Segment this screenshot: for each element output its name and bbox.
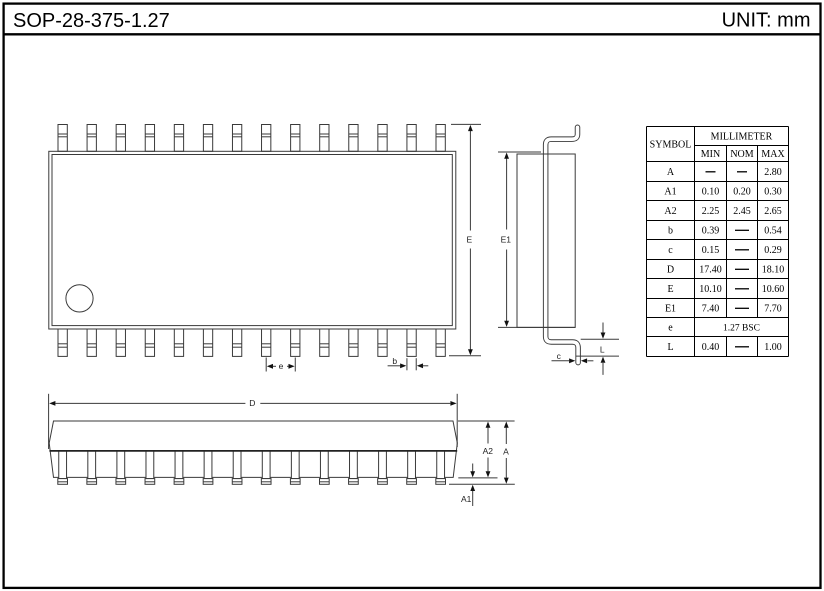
svg-text:17.40: 17.40 [699,265,722,276]
svg-text:NOM: NOM [730,149,753,160]
svg-text:A2: A2 [664,206,676,217]
svg-text:D: D [249,398,255,408]
svg-text:UNIT: mm: UNIT: mm [722,10,811,32]
svg-text:c: c [668,245,673,256]
svg-text:0.40: 0.40 [702,342,720,353]
svg-text:7.70: 7.70 [764,304,782,315]
svg-text:A1: A1 [664,187,676,198]
svg-text:18.10: 18.10 [762,265,785,276]
svg-text:0.30: 0.30 [764,187,782,198]
svg-text:A: A [667,167,675,178]
svg-text:0.54: 0.54 [764,226,782,237]
svg-text:E1: E1 [501,235,512,245]
svg-text:A2: A2 [483,446,494,456]
svg-text:MAX: MAX [761,149,785,160]
svg-text:E: E [466,235,472,245]
svg-text:0.10: 0.10 [702,187,720,198]
svg-text:e: e [668,323,673,334]
svg-text:0.20: 0.20 [733,187,751,198]
svg-text:10.10: 10.10 [699,284,722,295]
svg-text:b: b [392,356,397,366]
svg-text:A: A [503,447,509,457]
svg-text:2.65: 2.65 [764,206,782,217]
svg-text:MIN: MIN [701,149,720,160]
svg-text:7.40: 7.40 [702,304,720,315]
svg-text:0.39: 0.39 [702,226,720,237]
svg-text:2.80: 2.80 [764,167,782,178]
svg-text:0.29: 0.29 [764,245,782,256]
svg-text:MILLIMETER: MILLIMETER [711,132,773,143]
svg-text:L: L [667,342,673,353]
svg-text:10.60: 10.60 [762,284,785,295]
svg-text:E1: E1 [665,304,676,315]
svg-text:SOP-28-375-1.27: SOP-28-375-1.27 [13,10,170,32]
svg-text:SYMBOL: SYMBOL [650,140,692,151]
svg-text:2.25: 2.25 [702,206,720,217]
svg-text:E: E [667,284,673,295]
svg-text:b: b [668,226,673,237]
svg-text:0.15: 0.15 [702,245,720,256]
svg-text:1.27 BSC: 1.27 BSC [723,324,760,334]
svg-text:c: c [557,351,562,361]
svg-text:1.00: 1.00 [764,342,782,353]
svg-text:L: L [600,345,605,355]
svg-text:e: e [279,361,284,371]
svg-text:A1: A1 [461,494,472,504]
svg-text:D: D [667,265,674,276]
svg-text:2.45: 2.45 [733,206,751,217]
